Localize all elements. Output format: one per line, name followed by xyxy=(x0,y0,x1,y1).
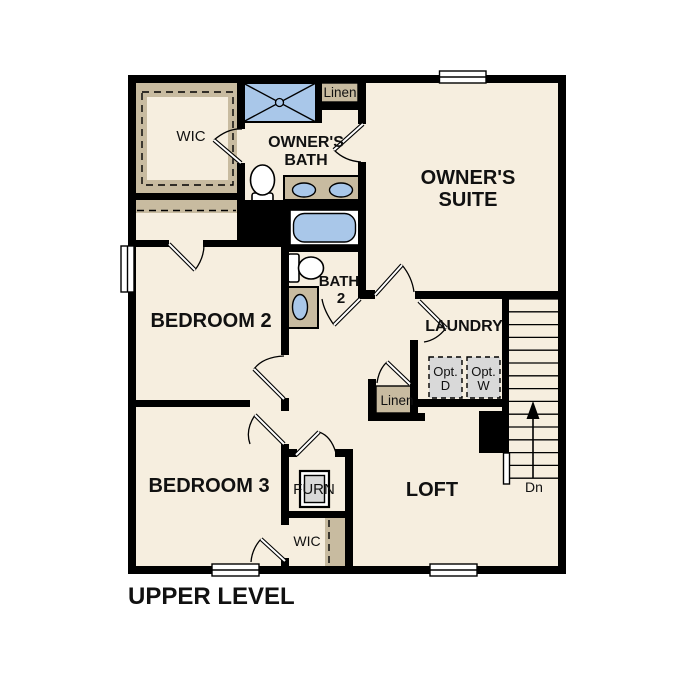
upper-level-floor-plan: WIC OWNER'S BATH Linen OWNER'S SUITE BED… xyxy=(0,0,687,687)
window-left-bedroom2 xyxy=(121,246,134,292)
opt-washer-label-line1: Opt. xyxy=(471,364,496,379)
bath2-label-line2: 2 xyxy=(337,290,345,307)
linen-upper-label: Linen xyxy=(323,85,356,100)
linen-lower-label: Linen xyxy=(380,393,413,408)
stair-railing xyxy=(504,453,510,484)
window-bottom-loft xyxy=(430,564,477,576)
loft-label: LOFT xyxy=(406,479,458,501)
owners-toilet-icon xyxy=(251,165,275,206)
owners-suite-label-line2: SUITE xyxy=(439,189,498,211)
window-top xyxy=(440,71,487,83)
wic-lower-shelf xyxy=(325,518,345,566)
bedroom2-closet-shelf xyxy=(136,200,237,213)
opt-dryer-label-line1: Opt. xyxy=(433,364,458,379)
owners-bath-label-line1: OWNER'S xyxy=(268,134,344,151)
furnace-label: FURN xyxy=(293,481,335,498)
wic-upper-label: WIC xyxy=(176,128,205,145)
opt-dryer-label-line2: D xyxy=(441,378,450,393)
shower-icon xyxy=(243,83,316,122)
window-bottom-bedroom3 xyxy=(212,564,259,576)
bathtub-icon xyxy=(290,210,359,245)
bedroom3-label: BEDROOM 3 xyxy=(148,475,269,497)
owners-suite-label-line1: OWNER'S xyxy=(421,167,516,189)
bath2-label-line1: BATH xyxy=(319,273,360,290)
page-title: UPPER LEVEL xyxy=(128,583,295,610)
wic-lower-label: WIC xyxy=(293,533,320,549)
bedroom2-label: BEDROOM 2 xyxy=(150,310,271,332)
laundry-label: LAUNDRY xyxy=(425,318,503,335)
floor-plan-page: WIC OWNER'S BATH Linen OWNER'S SUITE BED… xyxy=(0,0,687,687)
owners-vanity-icon xyxy=(284,176,363,200)
opt-washer-label-line2: W xyxy=(477,378,490,393)
stairs-direction-label: Dn xyxy=(525,479,543,495)
bath2-vanity-icon xyxy=(288,287,318,328)
owners-bath-label-line2: BATH xyxy=(284,152,327,169)
